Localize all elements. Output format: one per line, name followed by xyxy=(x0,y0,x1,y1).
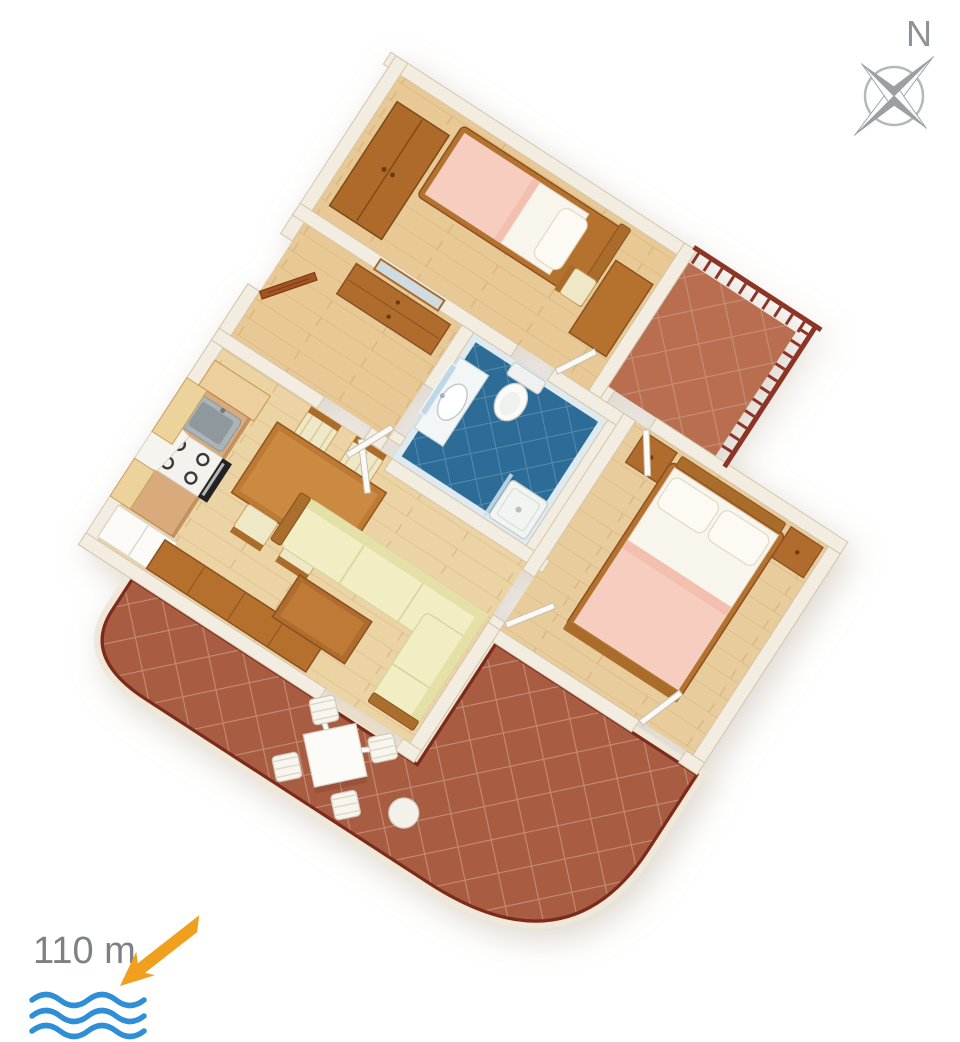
distance-label: 110 m xyxy=(33,930,136,972)
compass-label: N xyxy=(906,13,932,54)
sea-waves-icon xyxy=(32,995,144,1037)
distance-to-sea: 110 m xyxy=(32,907,212,1036)
compass-star xyxy=(849,51,940,142)
compass: N xyxy=(849,13,940,141)
map-annotations: N 110 m xyxy=(0,0,960,1042)
floorplan-stage: N 110 m xyxy=(0,0,960,1042)
